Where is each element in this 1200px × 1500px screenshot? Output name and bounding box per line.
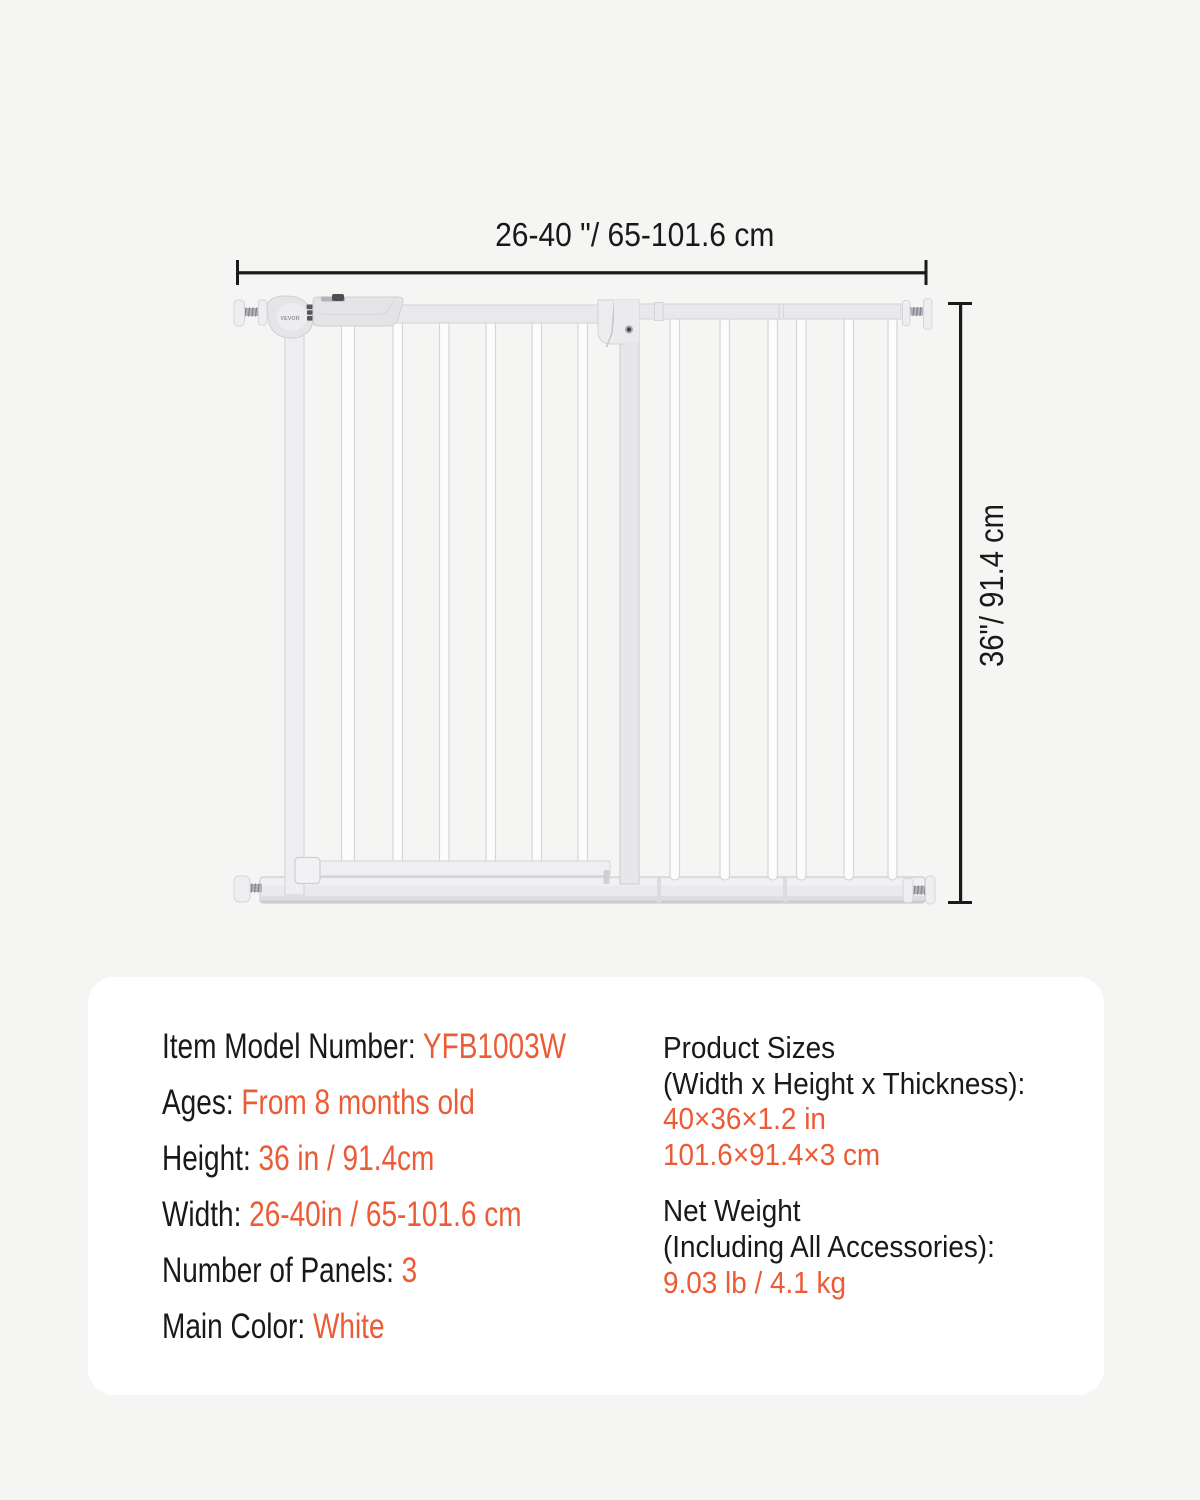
svg-text:36"/ 91.4 cm: 36"/ 91.4 cm (973, 504, 1010, 667)
svg-text:VEVOR: VEVOR (280, 316, 299, 322)
svg-text:26-40 "/ 65-101.6 cm: 26-40 "/ 65-101.6 cm (495, 216, 774, 254)
